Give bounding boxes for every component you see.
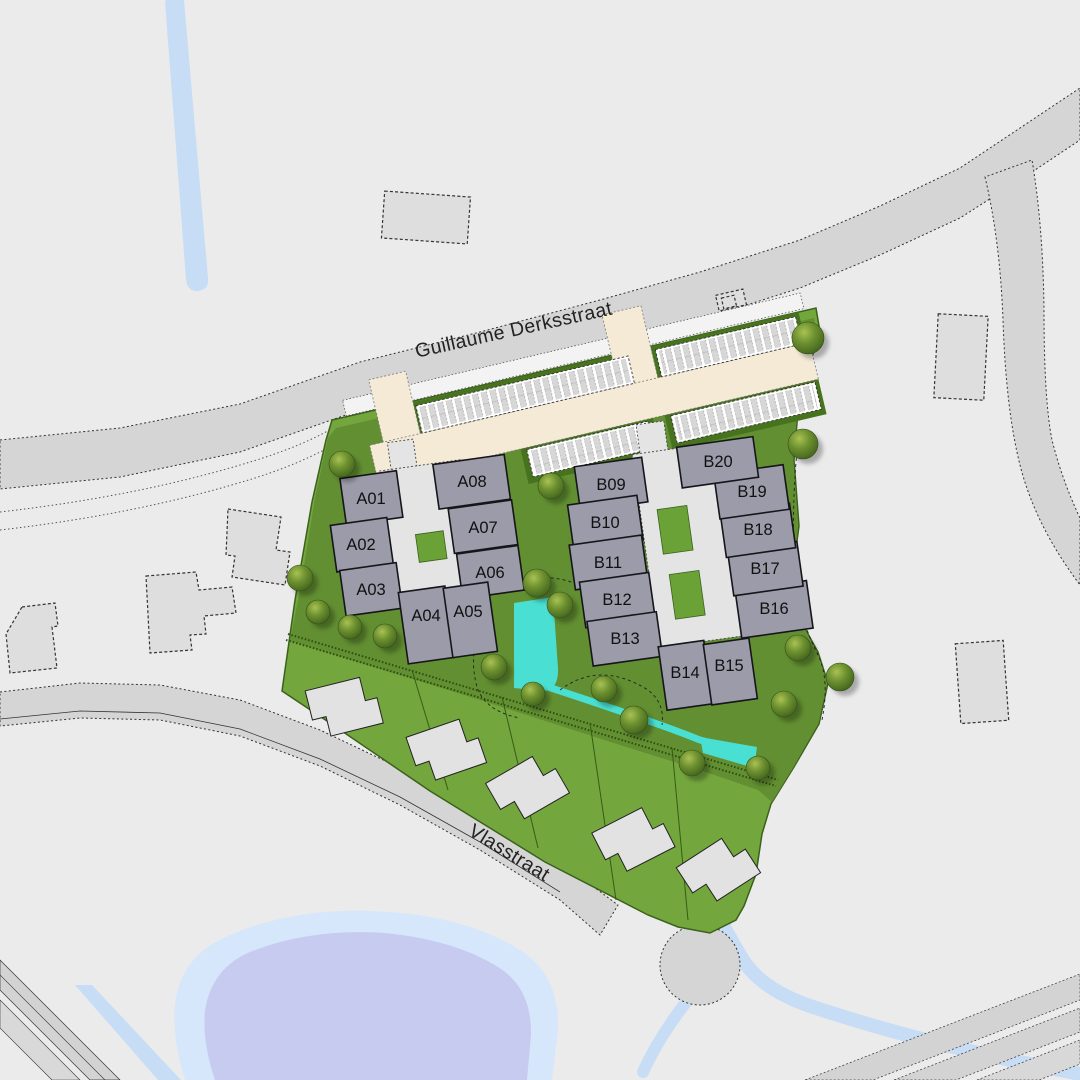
cluster-b-courtyard-green-2 — [669, 570, 705, 619]
tree-icon — [826, 663, 854, 691]
cluster-a-courtyard-green — [415, 531, 447, 563]
unit-label-b18[interactable]: B18 — [743, 521, 772, 539]
cul-de-sac — [660, 925, 740, 1005]
tree-icon — [329, 451, 355, 477]
unit-label-a02[interactable]: A02 — [346, 536, 375, 554]
tree-icon — [306, 600, 330, 624]
unit-label-a07[interactable]: A07 — [468, 519, 497, 537]
site-plan-svg: Guillaume Derksstraat Vlasstraat A01 A02… — [0, 0, 1080, 1080]
tree-icon — [746, 756, 770, 780]
tree-icon — [523, 569, 551, 597]
existing-building-east — [955, 640, 1008, 723]
unit-label-b12[interactable]: B12 — [602, 591, 631, 609]
tree-icon — [481, 654, 507, 680]
unit-label-b20[interactable]: B20 — [703, 453, 732, 471]
tree-icon — [521, 682, 545, 706]
unit-label-a01[interactable]: A01 — [356, 490, 385, 508]
tree-icon — [771, 691, 797, 717]
tree-icon — [679, 750, 705, 776]
tree-icon — [792, 322, 824, 354]
unit-label-b09[interactable]: B09 — [596, 476, 625, 494]
unit-label-a04[interactable]: A04 — [411, 607, 440, 625]
tree-icon — [785, 635, 811, 661]
tree-icon — [538, 473, 564, 499]
tree-icon — [287, 565, 313, 591]
tree-icon — [373, 624, 397, 648]
site-plan: Guillaume Derksstraat Vlasstraat A01 A02… — [0, 0, 1080, 1080]
tree-icon — [547, 592, 573, 618]
unit-label-b16[interactable]: B16 — [759, 600, 788, 618]
cluster-b-courtyard-green-1 — [657, 505, 693, 554]
tree-icon — [338, 615, 362, 639]
unit-label-b17[interactable]: B17 — [750, 560, 779, 578]
existing-building-north — [381, 191, 470, 244]
unit-label-b14[interactable]: B14 — [670, 664, 699, 682]
unit-label-b13[interactable]: B13 — [610, 630, 639, 648]
tree-icon — [788, 429, 818, 459]
unit-label-a06[interactable]: A06 — [475, 564, 504, 582]
unit-label-a05[interactable]: A05 — [453, 603, 482, 621]
unit-label-b11[interactable]: B11 — [594, 554, 622, 572]
unit-label-b10[interactable]: B10 — [590, 514, 619, 532]
unit-label-b19[interactable]: B19 — [737, 483, 766, 501]
existing-building-northeast — [934, 314, 988, 401]
unit-label-a03[interactable]: A03 — [356, 581, 385, 599]
tree-icon — [620, 706, 648, 734]
tree-icon — [591, 676, 617, 702]
unit-label-b15[interactable]: B15 — [714, 657, 743, 675]
unit-label-a08[interactable]: A08 — [457, 473, 486, 491]
